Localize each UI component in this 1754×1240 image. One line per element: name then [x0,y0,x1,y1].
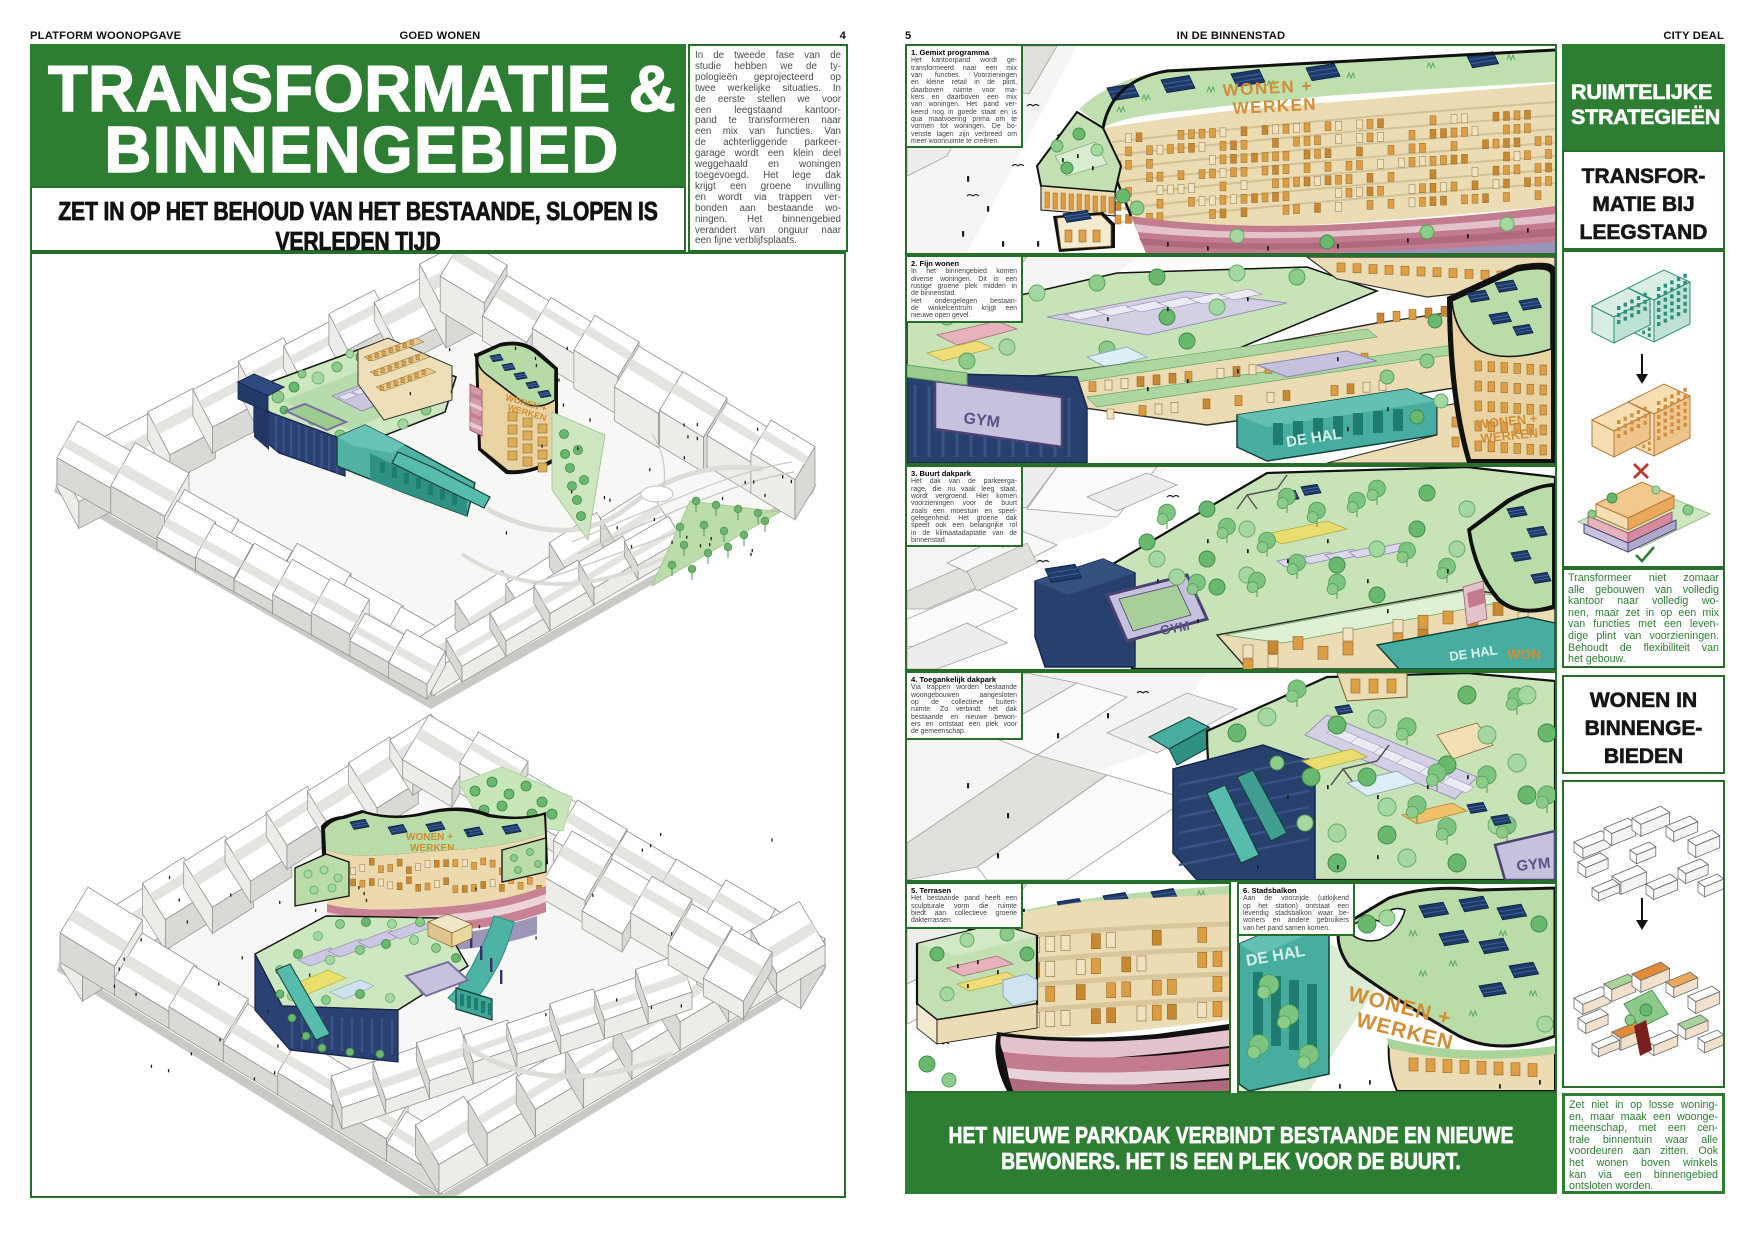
svg-text:WONEN +: WONEN + [406,832,453,843]
svg-text:GYM: GYM [1516,854,1552,874]
svg-text:WON: WON [1507,646,1541,662]
